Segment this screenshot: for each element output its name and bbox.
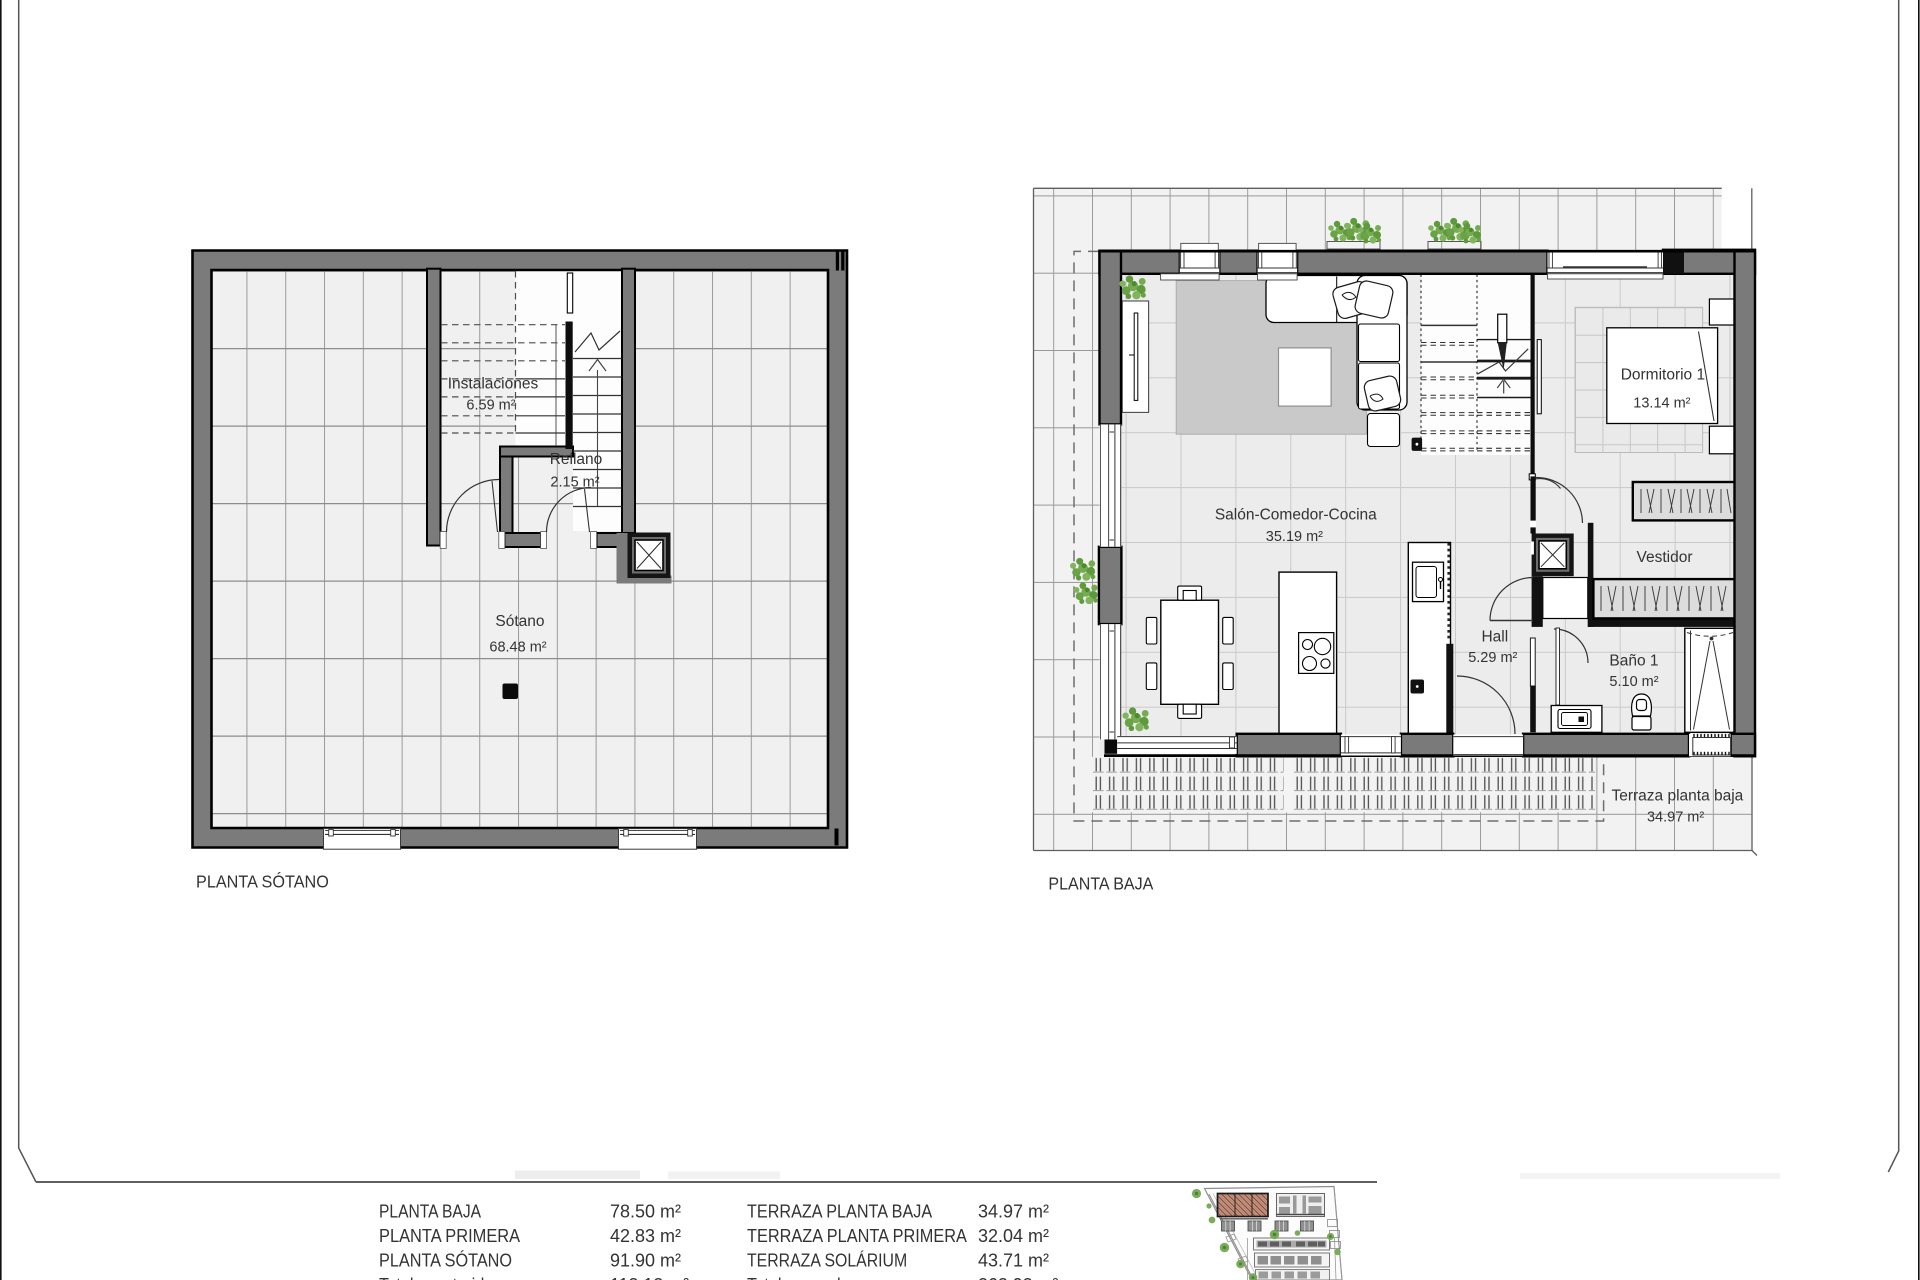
svg-text:13.14 m²: 13.14 m² (1633, 396, 1690, 412)
svg-text:2.15 m²: 2.15 m² (550, 475, 599, 491)
svg-text:PLANTA SÓTANO: PLANTA SÓTANO (379, 1248, 512, 1270)
svg-text:Baño 1: Baño 1 (1609, 653, 1658, 670)
svg-text:35.19 m²: 35.19 m² (1266, 529, 1323, 545)
svg-text:34.97 m²: 34.97 m² (978, 1200, 1049, 1221)
svg-text:43.71 m²: 43.71 m² (978, 1249, 1049, 1270)
svg-text:Hall: Hall (1481, 629, 1508, 646)
svg-text:78.50 m²: 78.50 m² (610, 1200, 681, 1221)
svg-text:TERRAZA PLANTA PRIMERA: TERRAZA PLANTA PRIMERA (747, 1225, 967, 1246)
svg-text:PLANTA BAJA: PLANTA BAJA (1048, 874, 1154, 894)
svg-text:91.90 m²: 91.90 m² (610, 1249, 681, 1270)
svg-text:Salón-Comedor-Cocina: Salón-Comedor-Cocina (1215, 507, 1377, 524)
svg-text:Instalaciones: Instalaciones (448, 376, 539, 393)
svg-text:32.04 m²: 32.04 m² (978, 1225, 1049, 1246)
svg-text:PLANTA PRIMERA: PLANTA PRIMERA (379, 1225, 520, 1246)
svg-text:42.83 m²: 42.83 m² (610, 1225, 681, 1246)
svg-text:TERRAZA PLANTA BAJA: TERRAZA PLANTA BAJA (747, 1200, 932, 1221)
svg-text:Sótano: Sótano (495, 613, 544, 630)
svg-text:113.13 m²: 113.13 m² (610, 1274, 689, 1280)
svg-text:Rellano: Rellano (550, 451, 603, 468)
svg-text:PLANTA BAJA: PLANTA BAJA (379, 1200, 481, 1222)
svg-text:262.92 m²: 262.92 m² (978, 1274, 1058, 1280)
svg-text:Dormitorio 1: Dormitorio 1 (1621, 367, 1705, 384)
svg-text:68.48 m²: 68.48 m² (489, 640, 546, 656)
svg-text:5.29 m²: 5.29 m² (1468, 650, 1517, 666)
svg-text:5.10 m²: 5.10 m² (1609, 674, 1658, 690)
svg-text:Total construida: Total construida (379, 1274, 494, 1280)
svg-text:TERRAZA SOLÁRIUM: TERRAZA SOLÁRIUM (747, 1249, 907, 1271)
svg-text:Terraza planta baja: Terraza planta baja (1611, 788, 1743, 805)
svg-text:PLANTA SÓTANO: PLANTA SÓTANO (196, 872, 329, 892)
svg-text:34.97 m²: 34.97 m² (1647, 810, 1704, 826)
svg-text:6.59 m²: 6.59 m² (466, 398, 515, 414)
svg-text:Vestidor: Vestidor (1636, 549, 1692, 566)
svg-text:Total general: Total general (747, 1274, 841, 1280)
